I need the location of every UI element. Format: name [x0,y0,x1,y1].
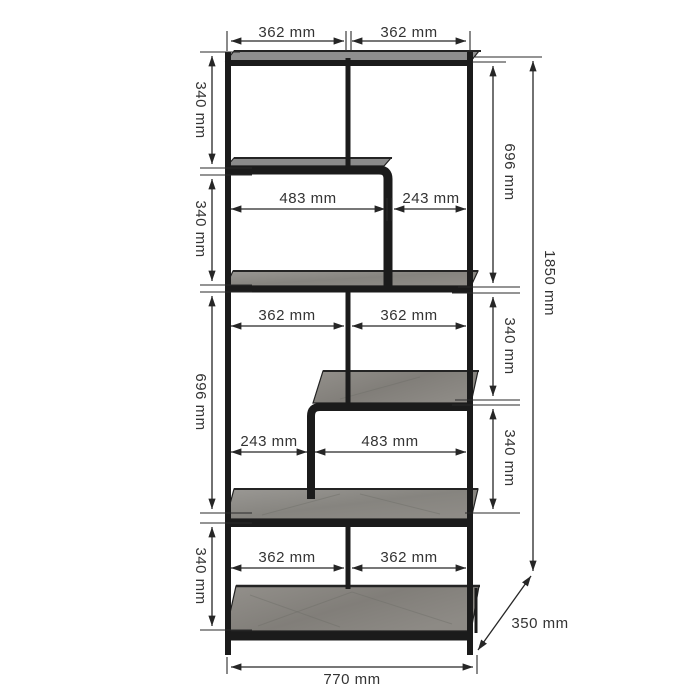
step-rail-middle [311,407,471,499]
dim-overall-depth: 350 mm [511,615,568,632]
dim-top-right-width: 362 mm [380,24,437,41]
shelf-surfaces [226,51,479,631]
dimension-lines [212,41,533,667]
step-rail-upper [227,170,388,287]
dim-overall-width: 770 mm [323,671,380,688]
dim-right-height-2: 340 mm [501,317,518,374]
dim-bottom-right-width: 362 mm [380,549,437,566]
bookshelf-dimension-diagram: 362 mm 362 mm 483 mm 243 mm 362 mm 362 m… [0,0,700,700]
dim-middle-left-width: 362 mm [258,307,315,324]
dim-left-height-4: 340 mm [192,547,209,604]
dim-upper-shelf-left: 483 mm [279,190,336,207]
dim-lower-shelf-right: 483 mm [361,433,418,450]
dim-right-height-3: 340 mm [501,429,518,486]
dim-left-height-3: 696 mm [192,373,209,430]
dim-left-height-1: 340 mm [192,81,209,138]
dim-bottom-left-width: 362 mm [258,549,315,566]
dim-left-height-2: 340 mm [192,200,209,257]
dim-middle-right-width: 362 mm [380,307,437,324]
dim-overall-height: 1850 mm [541,250,558,316]
dim-right-height-1: 696 mm [501,143,518,200]
dim-lower-shelf-left: 243 mm [240,433,297,450]
extension-lines [200,31,542,674]
dim-top-left-width: 362 mm [258,24,315,41]
dim-upper-shelf-right: 243 mm [402,190,459,207]
